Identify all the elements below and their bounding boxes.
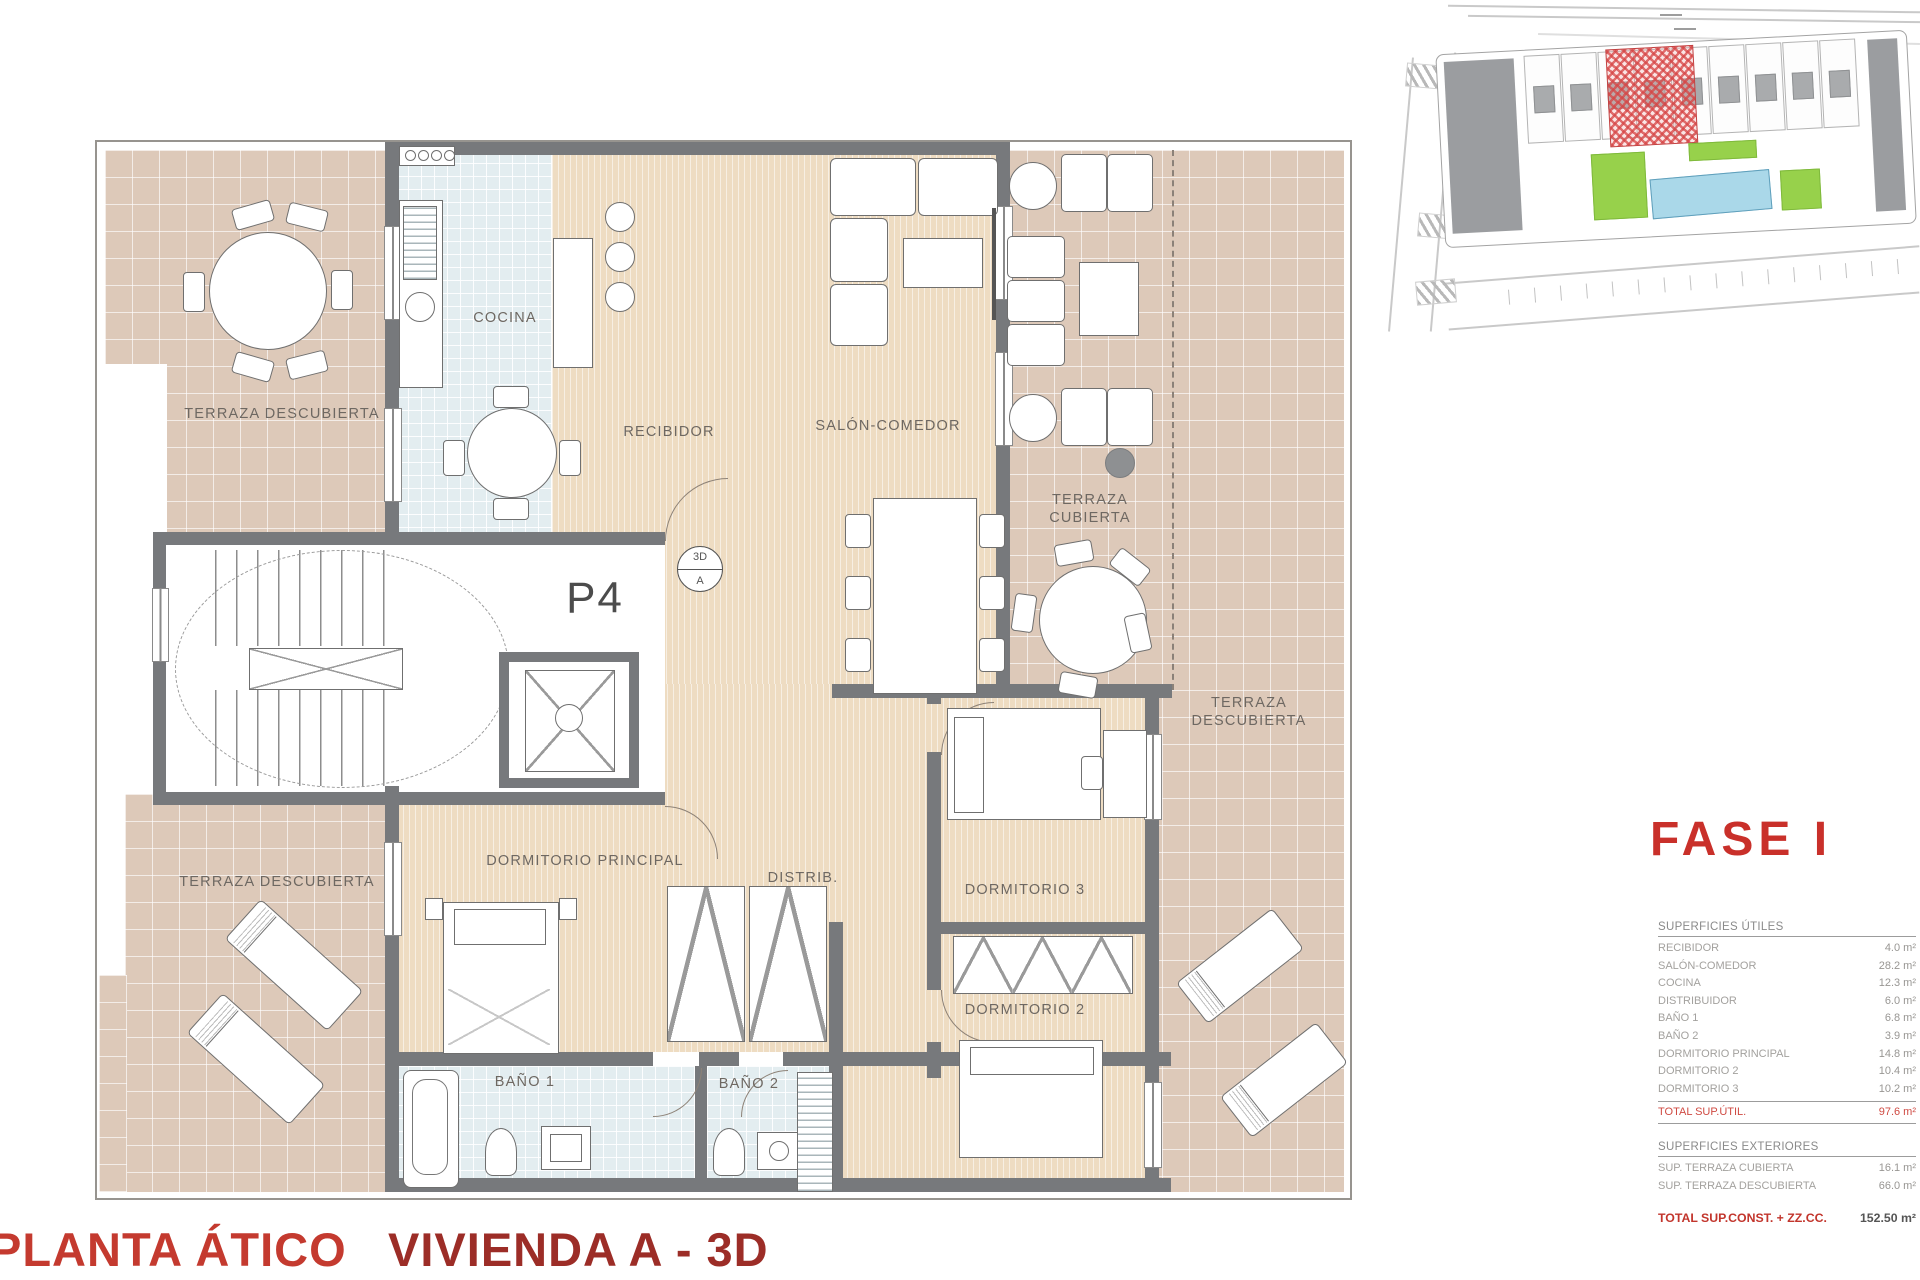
furniture-outdoor-sofa (1061, 388, 1107, 446)
furniture-chair (845, 514, 871, 548)
table-header-utiles: SUPERFICIES ÚTILES (1658, 921, 1916, 937)
stair-turning-circle (175, 550, 509, 788)
window (384, 842, 402, 936)
wall (153, 792, 665, 805)
furniture-wardrobe (667, 886, 745, 1042)
furniture-chair (493, 386, 529, 408)
table-row: DORMITORIO 210.4 m² (1658, 1063, 1916, 1081)
sink-icon (541, 1126, 591, 1170)
door-opening (739, 1052, 783, 1066)
furniture-dining-table (873, 498, 977, 694)
siteplan-unit (1745, 42, 1786, 132)
furniture-outdoor-sofa (1061, 154, 1107, 212)
window (1144, 1082, 1162, 1168)
site-parcel (1435, 30, 1914, 246)
parking-tick (1845, 263, 1847, 278)
furniture-desk (1103, 730, 1147, 818)
furniture-outdoor-sofa (1007, 236, 1065, 278)
parking-tick (1534, 288, 1536, 303)
parking-tick (1741, 271, 1743, 286)
highlighted-unit (1605, 45, 1698, 147)
surface-area-table: SUPERFICIES ÚTILES RECIBIDOR4.0 m²SALÓN-… (1658, 921, 1916, 1225)
furniture-chair (331, 270, 353, 310)
table-row: RECIBIDOR4.0 m² (1658, 940, 1916, 958)
room-label-bano-2: BAÑO 2 (719, 1075, 779, 1093)
furniture-bed (443, 902, 559, 1054)
table-total-utiles: TOTAL SUP.ÚTIL. 97.6 m² (1658, 1101, 1916, 1124)
furniture-sofa (830, 158, 916, 216)
parking-tick (1793, 267, 1795, 282)
wall (153, 532, 665, 545)
shower-icon (797, 1072, 833, 1192)
table-row: BAÑO 23.9 m² (1658, 1028, 1916, 1046)
siteplan-unit (1523, 54, 1564, 144)
table-grand-total: TOTAL SUP.CONST. + ZZ.CC. 152.50 m² (1658, 1211, 1916, 1225)
room-label-terraza-right: TERRAZA DESCUBIERTA (1192, 694, 1307, 730)
furniture-chair (493, 498, 529, 520)
furniture-outdoor-sofa (1107, 388, 1153, 446)
room-label-terraza-tl: TERRAZA DESCUBIERTA (184, 405, 380, 423)
furniture-chair (443, 440, 465, 476)
bathtub-icon (403, 1070, 459, 1188)
floor-plan: P4 3D A (95, 140, 1352, 1200)
room-terraza-bottom-left-ext (99, 975, 127, 1192)
furniture-coffee-table (903, 238, 983, 288)
parking-tick (1767, 269, 1769, 284)
north-tick (1660, 14, 1682, 16)
furniture-stool (605, 282, 635, 312)
wall (941, 922, 1159, 934)
furniture-bed (947, 708, 1101, 820)
parking-tick (1560, 286, 1562, 301)
parking-tick (1612, 281, 1614, 296)
furniture-dining-table (209, 232, 327, 350)
parking-tick (1586, 284, 1588, 299)
plan-notch (97, 364, 167, 532)
window (384, 408, 402, 502)
furniture-chair (559, 440, 581, 476)
tv-icon (992, 208, 996, 320)
siteplan-unit (1782, 40, 1823, 130)
phase-label: FASE I (1650, 812, 1832, 867)
room-label-terraza-bl: TERRAZA DESCUBIERTA (179, 873, 375, 891)
furniture-side-table (1009, 394, 1057, 442)
room-label-terraza-cubierta: TERRAZA CUBIERTA (1049, 491, 1131, 527)
furniture-stool (605, 242, 635, 272)
furniture-chair (979, 576, 1005, 610)
table-rows-utiles: RECIBIDOR4.0 m²SALÓN-COMEDOR28.2 m²COCIN… (1658, 940, 1916, 1098)
wall (153, 532, 166, 805)
furniture-outdoor-sofa (1007, 280, 1065, 322)
site-building-block (1444, 58, 1523, 233)
wall (927, 752, 941, 990)
furniture-chair (1081, 756, 1103, 790)
section-marker-icon: 3D A (677, 546, 723, 592)
wall (385, 1178, 1171, 1192)
room-label-salon: SALÓN-COMEDOR (815, 417, 960, 435)
street-line (1468, 15, 1920, 23)
parking-tick (1689, 275, 1691, 290)
siteplan-unit (1819, 38, 1860, 128)
kitchen-sink-drainer (403, 206, 437, 280)
parking-tick (1638, 279, 1640, 294)
furniture-sofa (830, 284, 888, 346)
furniture-side-table (1009, 162, 1057, 210)
furniture-chair (183, 272, 205, 312)
furniture-kitchen-table (467, 408, 557, 498)
table-row: BAÑO 16.8 m² (1658, 1010, 1916, 1028)
street-line (1448, 5, 1920, 14)
toilet-icon (713, 1128, 745, 1176)
stove-icon (399, 146, 455, 166)
kitchen-peninsula (553, 238, 593, 368)
window (995, 352, 1013, 446)
furniture-bed (959, 1040, 1103, 1158)
table-row: COCINA12.3 m² (1658, 975, 1916, 993)
parking-tick (1508, 290, 1510, 305)
sink-icon (757, 1132, 799, 1170)
table-header-exteriores: SUPERFICIES EXTERIORES (1658, 1141, 1916, 1157)
table-row: SUP. TERRAZA DESCUBIERTA66.0 m² (1658, 1178, 1916, 1196)
toilet-icon (485, 1128, 517, 1176)
table-rows-exteriores: SUP. TERRAZA CUBIERTA16.1 m²SUP. TERRAZA… (1658, 1160, 1916, 1195)
furniture-outdoor-table (1079, 262, 1139, 336)
wall (385, 142, 1010, 155)
table-row: DORMITORIO PRINCIPAL14.8 m² (1658, 1046, 1916, 1064)
page-title-left: PLANTA ÁTICO (0, 1222, 347, 1277)
room-label-recibidor: RECIBIDOR (623, 423, 714, 441)
parking-tick (1819, 265, 1821, 280)
furniture-chair (979, 514, 1005, 548)
pool (1649, 169, 1772, 219)
siteplan-unit (1560, 52, 1601, 142)
furniture-nightstand (425, 898, 443, 920)
room-label-dormitorio-2: DORMITORIO 2 (965, 1001, 1085, 1019)
table-row: SALÓN-COMEDOR28.2 m² (1658, 958, 1916, 976)
table-row: DORMITORIO 310.2 m² (1658, 1081, 1916, 1099)
parking-tick (1871, 261, 1873, 276)
parking-tick (1664, 277, 1666, 292)
room-label-bano-1: BAÑO 1 (495, 1073, 555, 1091)
room-label-dormitorio-3: DORMITORIO 3 (965, 881, 1085, 899)
terrace-separator-line (1172, 150, 1174, 690)
furniture-chair (979, 638, 1005, 672)
furniture-outdoor-sofa (1107, 154, 1153, 212)
table-row: DISTRIBUIDOR6.0 m² (1658, 993, 1916, 1011)
kitchen-sink-bowl (405, 292, 435, 322)
parking-tick (1897, 259, 1899, 274)
elevator-shaft (499, 652, 639, 788)
furniture-chair (845, 576, 871, 610)
room-label-dormitorio-principal: DORMITORIO PRINCIPAL (486, 852, 683, 870)
door-opening (653, 1052, 699, 1066)
furniture-stool (605, 202, 635, 232)
parking-tick (1715, 273, 1717, 288)
furniture-outdoor-sofa (1007, 324, 1065, 366)
unit-label: P4 (566, 571, 624, 626)
table-row: SUP. TERRAZA CUBIERTA16.1 m² (1658, 1160, 1916, 1178)
room-label-cocina: COCINA (473, 309, 537, 327)
room-label-distrib: DISTRIB. (768, 869, 839, 887)
furniture-wardrobe (749, 886, 827, 1042)
furniture-closet-row (953, 936, 1133, 994)
furniture-nightstand (559, 898, 577, 920)
furniture-sofa (830, 218, 888, 282)
furniture-chair (845, 638, 871, 672)
crosswalk (1415, 278, 1457, 305)
north-tick (1674, 28, 1696, 30)
furniture-sofa (918, 158, 998, 216)
page-title-right: VIVIENDA A - 3D (388, 1222, 769, 1277)
window (152, 588, 169, 662)
site-plan (1388, 2, 1920, 338)
furniture-round-table-dark (1105, 448, 1135, 478)
siteplan-unit (1708, 44, 1749, 134)
street-line (1388, 57, 1413, 331)
